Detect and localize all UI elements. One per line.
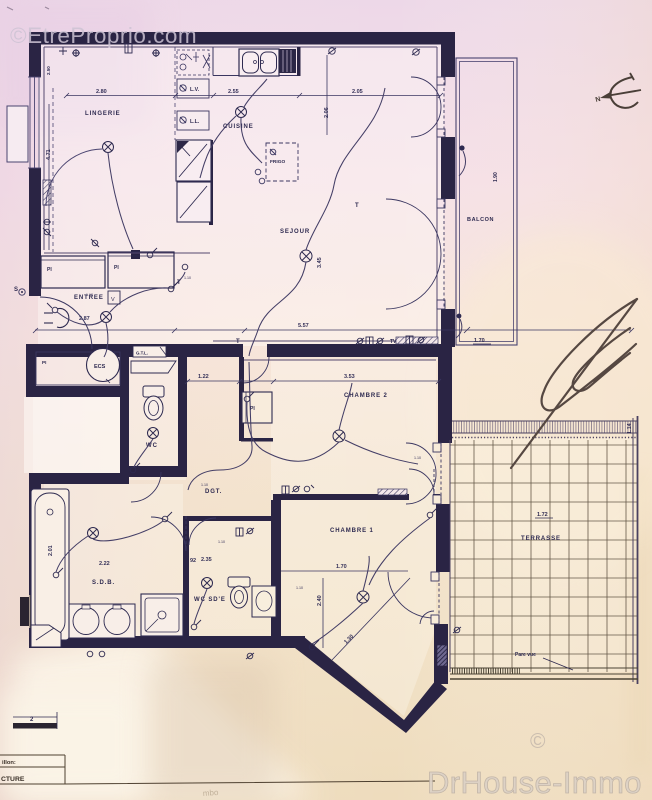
svg-text:1.70: 1.70 xyxy=(336,564,347,570)
svg-text:2.87: 2.87 xyxy=(79,316,90,322)
svg-text:illon:: illon: xyxy=(2,760,16,766)
svg-text:2.01: 2.01 xyxy=(48,545,54,556)
svg-text:1.90: 1.90 xyxy=(493,172,499,182)
svg-text:1.10: 1.10 xyxy=(201,483,208,487)
svg-text:2.40: 2.40 xyxy=(317,595,323,606)
svg-text:WC SD'E: WC SD'E xyxy=(194,597,226,603)
svg-text:92: 92 xyxy=(190,558,196,564)
svg-text:CHAMBRE 1: CHAMBRE 1 xyxy=(330,528,374,534)
svg-text:DrHouse-Immo: DrHouse-Immo xyxy=(427,765,642,800)
svg-text:G.T.L.: G.T.L. xyxy=(136,351,148,356)
svg-text:©EtreProprio.com: ©EtreProprio.com xyxy=(10,23,197,48)
svg-text:3.53: 3.53 xyxy=(344,374,355,380)
svg-text:2.05: 2.05 xyxy=(352,89,363,95)
svg-text:CTURE: CTURE xyxy=(1,776,25,783)
svg-text:Pare vue: Pare vue xyxy=(515,652,536,658)
svg-text:2.55: 2.55 xyxy=(228,89,239,95)
svg-text:BALCON: BALCON xyxy=(467,217,494,223)
svg-text:1.10: 1.10 xyxy=(184,276,191,280)
svg-text:3.45: 3.45 xyxy=(317,257,323,268)
svg-text:1.10: 1.10 xyxy=(218,540,225,544)
svg-text:S: S xyxy=(14,287,18,293)
svg-text:1.22: 1.22 xyxy=(198,374,209,380)
svg-text:PI: PI xyxy=(114,265,119,271)
svg-text:1.72: 1.72 xyxy=(537,512,548,518)
svg-text:L.V.: L.V. xyxy=(190,87,200,93)
svg-text:2.50: 2.50 xyxy=(46,66,51,75)
svg-text:SEJOUR: SEJOUR xyxy=(280,229,310,235)
svg-text:mbo: mbo xyxy=(203,788,220,798)
svg-text:2.06: 2.06 xyxy=(324,107,330,118)
svg-text:1.10: 1.10 xyxy=(296,586,303,590)
svg-text:CHAMBRE 2: CHAMBRE 2 xyxy=(344,393,388,399)
svg-text:1.10: 1.10 xyxy=(414,456,421,460)
svg-text:1.10: 1.10 xyxy=(86,293,93,297)
svg-text:S.D.B.: S.D.B. xyxy=(92,580,115,586)
svg-text:T: T xyxy=(355,203,359,209)
svg-text:TV: TV xyxy=(390,339,397,345)
svg-text:2.80: 2.80 xyxy=(96,89,107,95)
svg-text:4.71: 4.71 xyxy=(46,149,52,160)
svg-text:2.22: 2.22 xyxy=(99,561,110,567)
svg-text:L.L.: L.L. xyxy=(190,119,200,125)
svg-text:2.35: 2.35 xyxy=(201,557,212,563)
svg-text:FRIGO: FRIGO xyxy=(270,159,285,165)
svg-text:T: T xyxy=(177,280,181,286)
svg-text:1.14: 1.14 xyxy=(627,422,633,434)
svg-text:PI: PI xyxy=(42,360,46,365)
svg-text:ECS: ECS xyxy=(94,364,106,370)
svg-text:T: T xyxy=(236,339,240,345)
svg-text:5.57: 5.57 xyxy=(298,323,309,329)
svg-text:LINGERIE: LINGERIE xyxy=(85,111,121,117)
svg-text:PI: PI xyxy=(47,267,52,273)
svg-text:V: V xyxy=(111,297,115,303)
svg-text:TERRASSE: TERRASSE xyxy=(521,536,561,542)
svg-text:DGT.: DGT. xyxy=(205,489,222,495)
svg-text:©: © xyxy=(530,730,546,753)
svg-text:1.70: 1.70 xyxy=(474,338,485,344)
